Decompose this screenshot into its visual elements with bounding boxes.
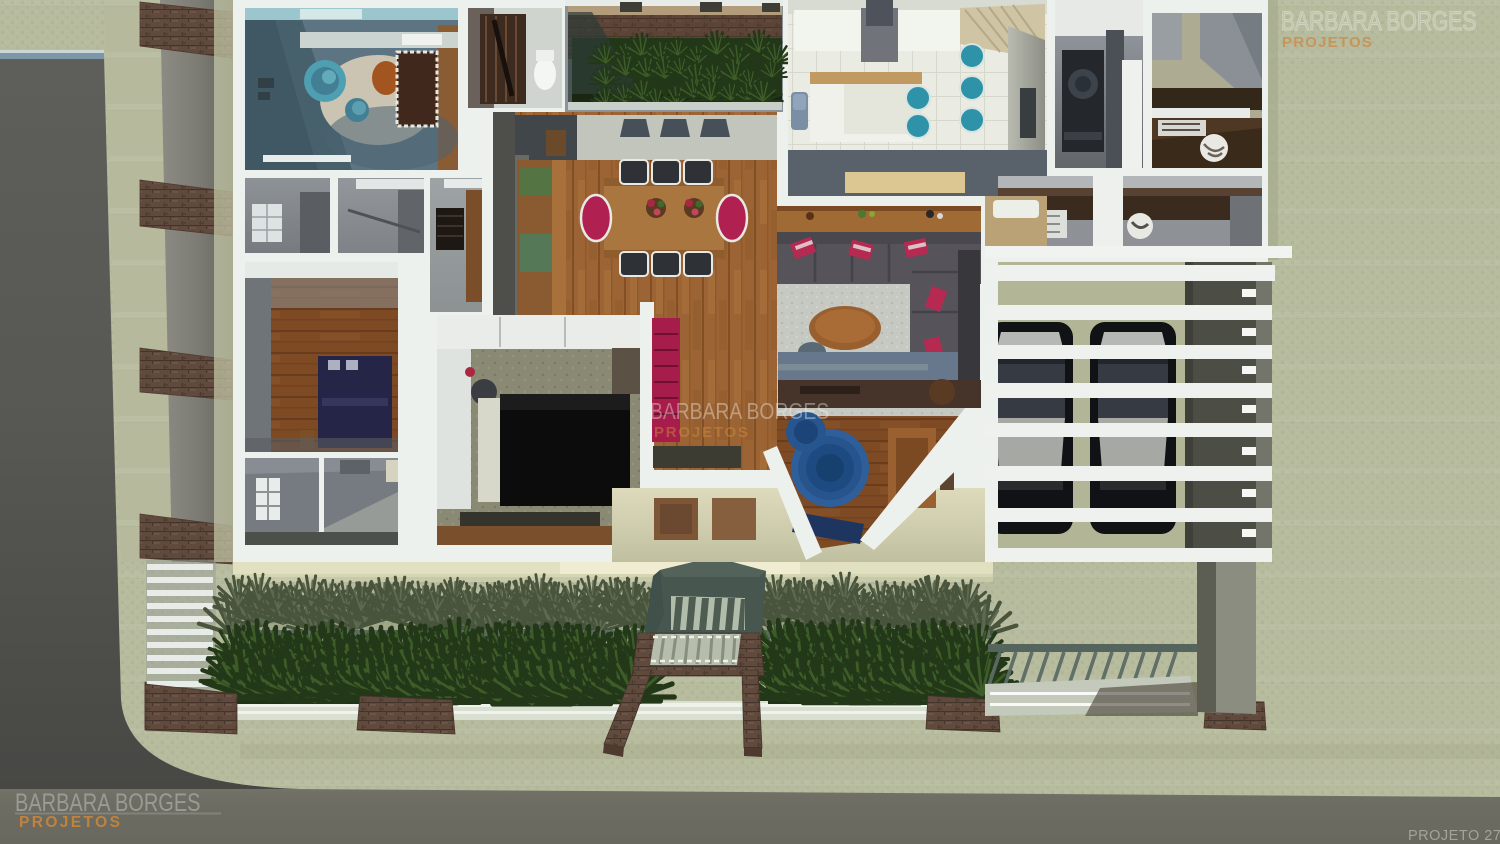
svg-text:PROJETOS: PROJETOS bbox=[654, 424, 750, 441]
svg-text:BARBARA BORGES: BARBARA BORGES bbox=[1281, 7, 1476, 37]
svg-text:PROJETO 27: PROJETO 27 bbox=[1408, 828, 1500, 844]
svg-text:PROJETOS: PROJETOS bbox=[1282, 34, 1373, 51]
svg-text:BARBARA BORGES: BARBARA BORGES bbox=[15, 789, 201, 817]
svg-text:BARBARA BORGES: BARBARA BORGES bbox=[650, 400, 829, 425]
svg-text:PROJETOS: PROJETOS bbox=[19, 814, 122, 831]
